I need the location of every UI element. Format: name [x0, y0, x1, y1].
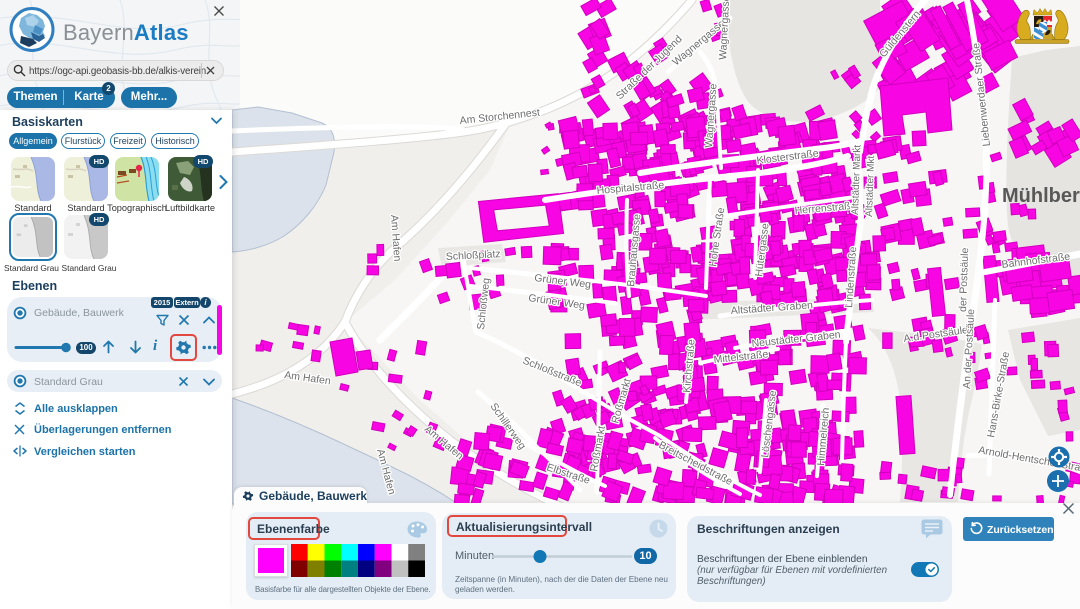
svg-text:Mühlberg: Mühlberg [1002, 185, 1080, 207]
svg-text:Altstädter Mkt: Altstädter Mkt [864, 155, 877, 217]
svg-text:der Postsäule: der Postsäule [957, 247, 971, 312]
